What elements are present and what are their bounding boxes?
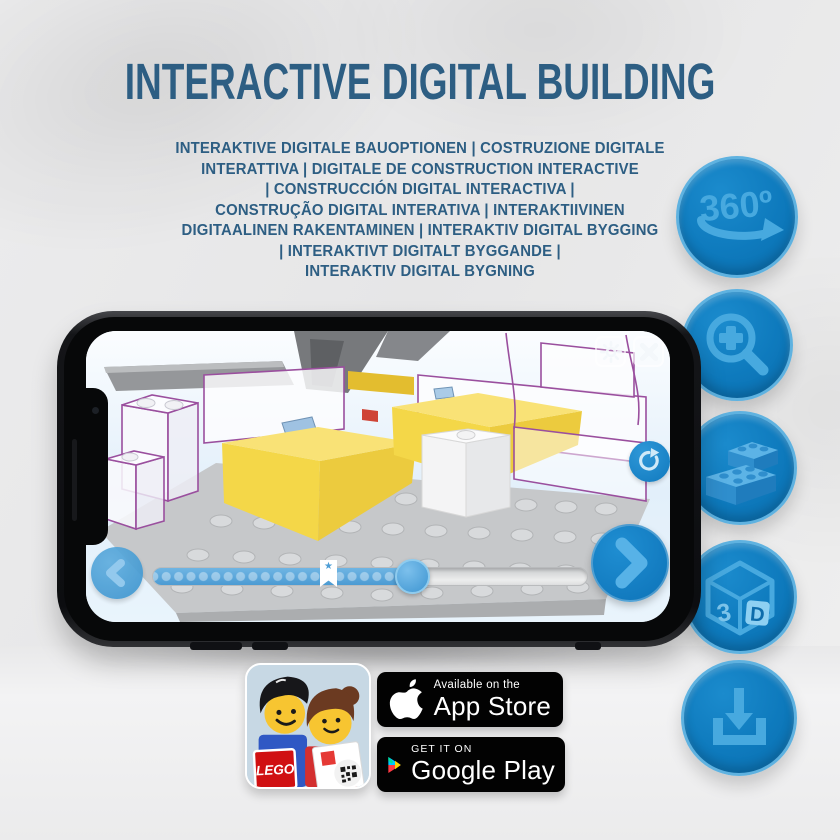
apple-icon: [389, 679, 424, 721]
google-play-icon: [387, 746, 402, 784]
360-rotation-icon: 360º: [685, 176, 789, 258]
earpiece-speaker: [72, 439, 77, 521]
gear-icon: [599, 340, 623, 364]
google-play-name: Google Play: [411, 757, 555, 784]
app-store-name: App Store: [434, 693, 551, 720]
rotate-reset-icon: [636, 448, 663, 475]
app-store-badge[interactable]: Available on the App Store: [377, 672, 563, 727]
subtitle-line: | INTERAKTIVT DIGITALT BYGGANDE |: [175, 242, 664, 263]
page-title: INTERACTIVE DIGITAL BUILDING: [125, 56, 716, 107]
build-progress-slider[interactable]: ★: [152, 567, 588, 586]
settings-button[interactable]: [595, 336, 626, 367]
subtitle-line: INTERAKTIV DIGITAL BYGNING: [175, 262, 664, 283]
rotate-view-button[interactable]: [629, 441, 670, 482]
subtitle-line: | CONSTRUCCIÓN DIGITAL INTERACTIVA |: [175, 180, 664, 201]
feature-badge-360: 360º: [676, 156, 798, 278]
phone-screen: ★: [86, 331, 670, 622]
lego-brick-icon: [694, 425, 786, 511]
previous-step-button[interactable]: [91, 547, 143, 599]
phone-mockup: ★: [57, 311, 701, 647]
front-camera: [92, 407, 99, 414]
multilingual-subtitle: INTERAKTIVE DIGITALE BAUOPTIONEN | COSTR…: [175, 139, 664, 283]
download-icon: [700, 680, 778, 756]
next-chevron-icon: [593, 526, 667, 600]
back-chevron-icon: [96, 552, 138, 594]
google-play-badge[interactable]: GET IT ON Google Play: [377, 737, 565, 792]
lego-logo-text: LEGO: [256, 761, 296, 778]
slider-thumb[interactable]: [395, 559, 430, 594]
subtitle-line: INTERATTIVA | DIGITALE DE CONSTRUCTION I…: [175, 160, 664, 181]
power-button: [575, 642, 601, 650]
google-play-tagline: GET IT ON: [411, 744, 555, 755]
promo-canvas: INTERACTIVE DIGITAL BUILDING INTERAKTIVE…: [0, 0, 840, 840]
volume-button: [190, 642, 242, 650]
zoom-in-icon: [697, 305, 777, 385]
cube-d-label: D: [749, 603, 765, 626]
lego-app-icon-art: LEGO: [247, 665, 369, 787]
close-icon: [639, 342, 659, 362]
360-label: 360º: [698, 182, 775, 229]
next-step-button[interactable]: [591, 524, 669, 602]
cube-3-label: 3: [715, 598, 734, 628]
close-button[interactable]: [633, 336, 664, 367]
subtitle-line: INTERAKTIVE DIGITALE BAUOPTIONEN | COSTR…: [175, 139, 664, 160]
lego-app-icon[interactable]: LEGO: [245, 663, 371, 789]
app-store-tagline: Available on the: [434, 679, 551, 691]
progress-fill: [153, 568, 419, 585]
volume-button: [252, 642, 288, 650]
3d-cube-icon: 3 D: [698, 555, 782, 639]
feature-badge-download: [681, 660, 797, 776]
subtitle-line: CONSTRUÇÃO DIGITAL INTERATIVA | INTERAKT…: [175, 201, 664, 222]
subtitle-line: DIGITAALINEN RAKENTAMINEN | INTERAKTIV D…: [175, 221, 664, 242]
